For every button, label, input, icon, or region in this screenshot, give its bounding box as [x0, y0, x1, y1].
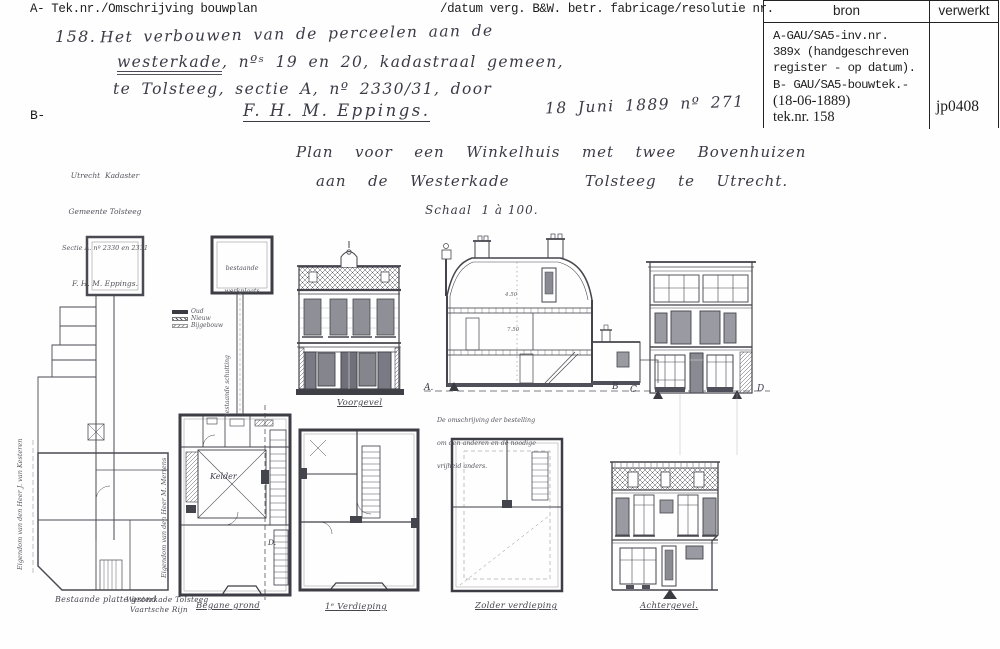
legend-label: Nieuw	[191, 315, 211, 322]
legend-row: Bijgebouw	[172, 322, 223, 329]
label-werkplaats-line: werkplaats	[214, 288, 270, 296]
label-eigendom-midden: Eigendom van den Heer M. Mertens	[160, 470, 168, 578]
label-zolder-verdieping: Zolder verdieping	[475, 601, 557, 611]
plan-title-line2: aan de Westerkade Tolsteeg te Utrecht.	[316, 172, 788, 190]
plan-scale: Schaal 1 à 100.	[425, 203, 539, 217]
marker-a: A.	[424, 383, 433, 393]
bron-column-header: bron	[764, 3, 929, 18]
entry-line3: te Tolsteeg, sectie A, nº 2330/31, door	[113, 80, 492, 98]
legend-swatch-old	[172, 310, 188, 314]
plan-title-line1: Plan voor een Winkelhuis met twee Bovenh…	[296, 143, 806, 161]
label-kelder: Kelder	[210, 472, 237, 481]
label-schutting: bestaande schutting	[224, 332, 231, 417]
entry-number: 158.	[55, 27, 96, 46]
entry-line2-rest: , nºˢ 19 en 20, kadastraal gemeen,	[222, 53, 564, 71]
entry-line2-underlined-word: westerkade	[117, 53, 222, 72]
section-note-line: vrijheid anders.	[437, 463, 536, 471]
kadaster-note-line: F. H. M. Eppings.	[45, 278, 165, 290]
register-table-divider	[929, 1, 930, 129]
kadaster-note: Utrecht Kadaster Gemeente Tolsteeg Secti…	[45, 146, 165, 314]
marker-d-plan: D.	[268, 538, 276, 547]
register-table: bron verwerkt A-GAU/SA5-inv.nr. 389x (ha…	[763, 0, 999, 128]
bron-line: (18-06-1889)	[773, 93, 915, 110]
label-1e-verdieping: 1ᵉ Verdieping	[325, 602, 387, 612]
achtergevel-drawing	[610, 462, 720, 599]
section-dim-upper: 4.50	[505, 292, 517, 298]
section-note-line: De omschrijving der bestelling	[437, 417, 536, 425]
label-werkplaats: bestaande werkplaats	[214, 250, 270, 311]
marker-c: C	[630, 385, 637, 395]
label-achtergevel: Achtergevel.	[640, 601, 698, 611]
verdieping-plan-drawing	[300, 430, 418, 590]
bron-line: tek.nr. 158	[773, 109, 915, 126]
verwerkt-column-header: verwerkt	[929, 3, 999, 18]
bron-line: B- GAU/SA5-bouwtek.-	[773, 77, 915, 93]
kadaster-note-line: Sectie A. nº 2330 en 2331	[45, 242, 165, 254]
legend-swatch-annex	[172, 324, 188, 328]
material-legend: Oud Nieuw Bijgebouw	[172, 308, 223, 329]
kadaster-note-line: Gemeente Tolsteeg	[45, 206, 165, 218]
verwerkt-cell: jp0408	[936, 99, 979, 116]
section-drawing	[442, 234, 658, 391]
header-left-label: A- Tek.nr./Omschrijving bouwplan	[30, 2, 257, 16]
label-vaartsche-rijn: Vaartsche Rijn	[130, 605, 188, 614]
label-eigendom-links: Eigendom van den Heer J. van Kesteren	[16, 430, 24, 570]
legend-row: Nieuw	[172, 315, 223, 322]
legend-label: Bijgebouw	[191, 322, 223, 329]
entry-applicant: F. H. M. Eppings.	[243, 101, 430, 122]
legend-label: Oud	[191, 308, 204, 315]
voorgevel-drawing	[296, 241, 404, 395]
section-note: De omschrijving der bestelling om den an…	[437, 402, 536, 486]
bron-line: 389x (handgeschreven	[773, 44, 915, 60]
marker-d: D	[757, 384, 764, 394]
legend-swatch-new	[172, 317, 188, 321]
header-b-prefix: B-	[30, 108, 45, 123]
section-dim-lower: 7.50	[507, 327, 519, 333]
marker-b: B	[612, 382, 619, 392]
archive-sheet: A- Tek.nr./Omschrijving bouwplan /datum …	[0, 0, 1000, 649]
bron-cell: A-GAU/SA5-inv.nr. 389x (handgeschreven r…	[773, 28, 915, 126]
label-voorgevel: Voorgevel	[337, 398, 382, 408]
label-begane-grond: Begane grond	[196, 601, 260, 611]
nieuwe-voorgevel-drawing	[646, 262, 756, 455]
label-werkplaats-line: bestaande	[214, 265, 270, 273]
entry-line2: westerkade, nºˢ 19 en 20, kadastraal gem…	[117, 53, 564, 71]
bron-line: register - op datum).	[773, 60, 915, 76]
kadaster-note-line: Utrecht Kadaster	[45, 170, 165, 182]
section-note-line: om den anderen en de noodige	[437, 440, 536, 448]
header-right-label: /datum verg. B&W. betr. fabricage/resolu…	[440, 2, 774, 16]
bron-line: A-GAU/SA5-inv.nr.	[773, 28, 915, 44]
